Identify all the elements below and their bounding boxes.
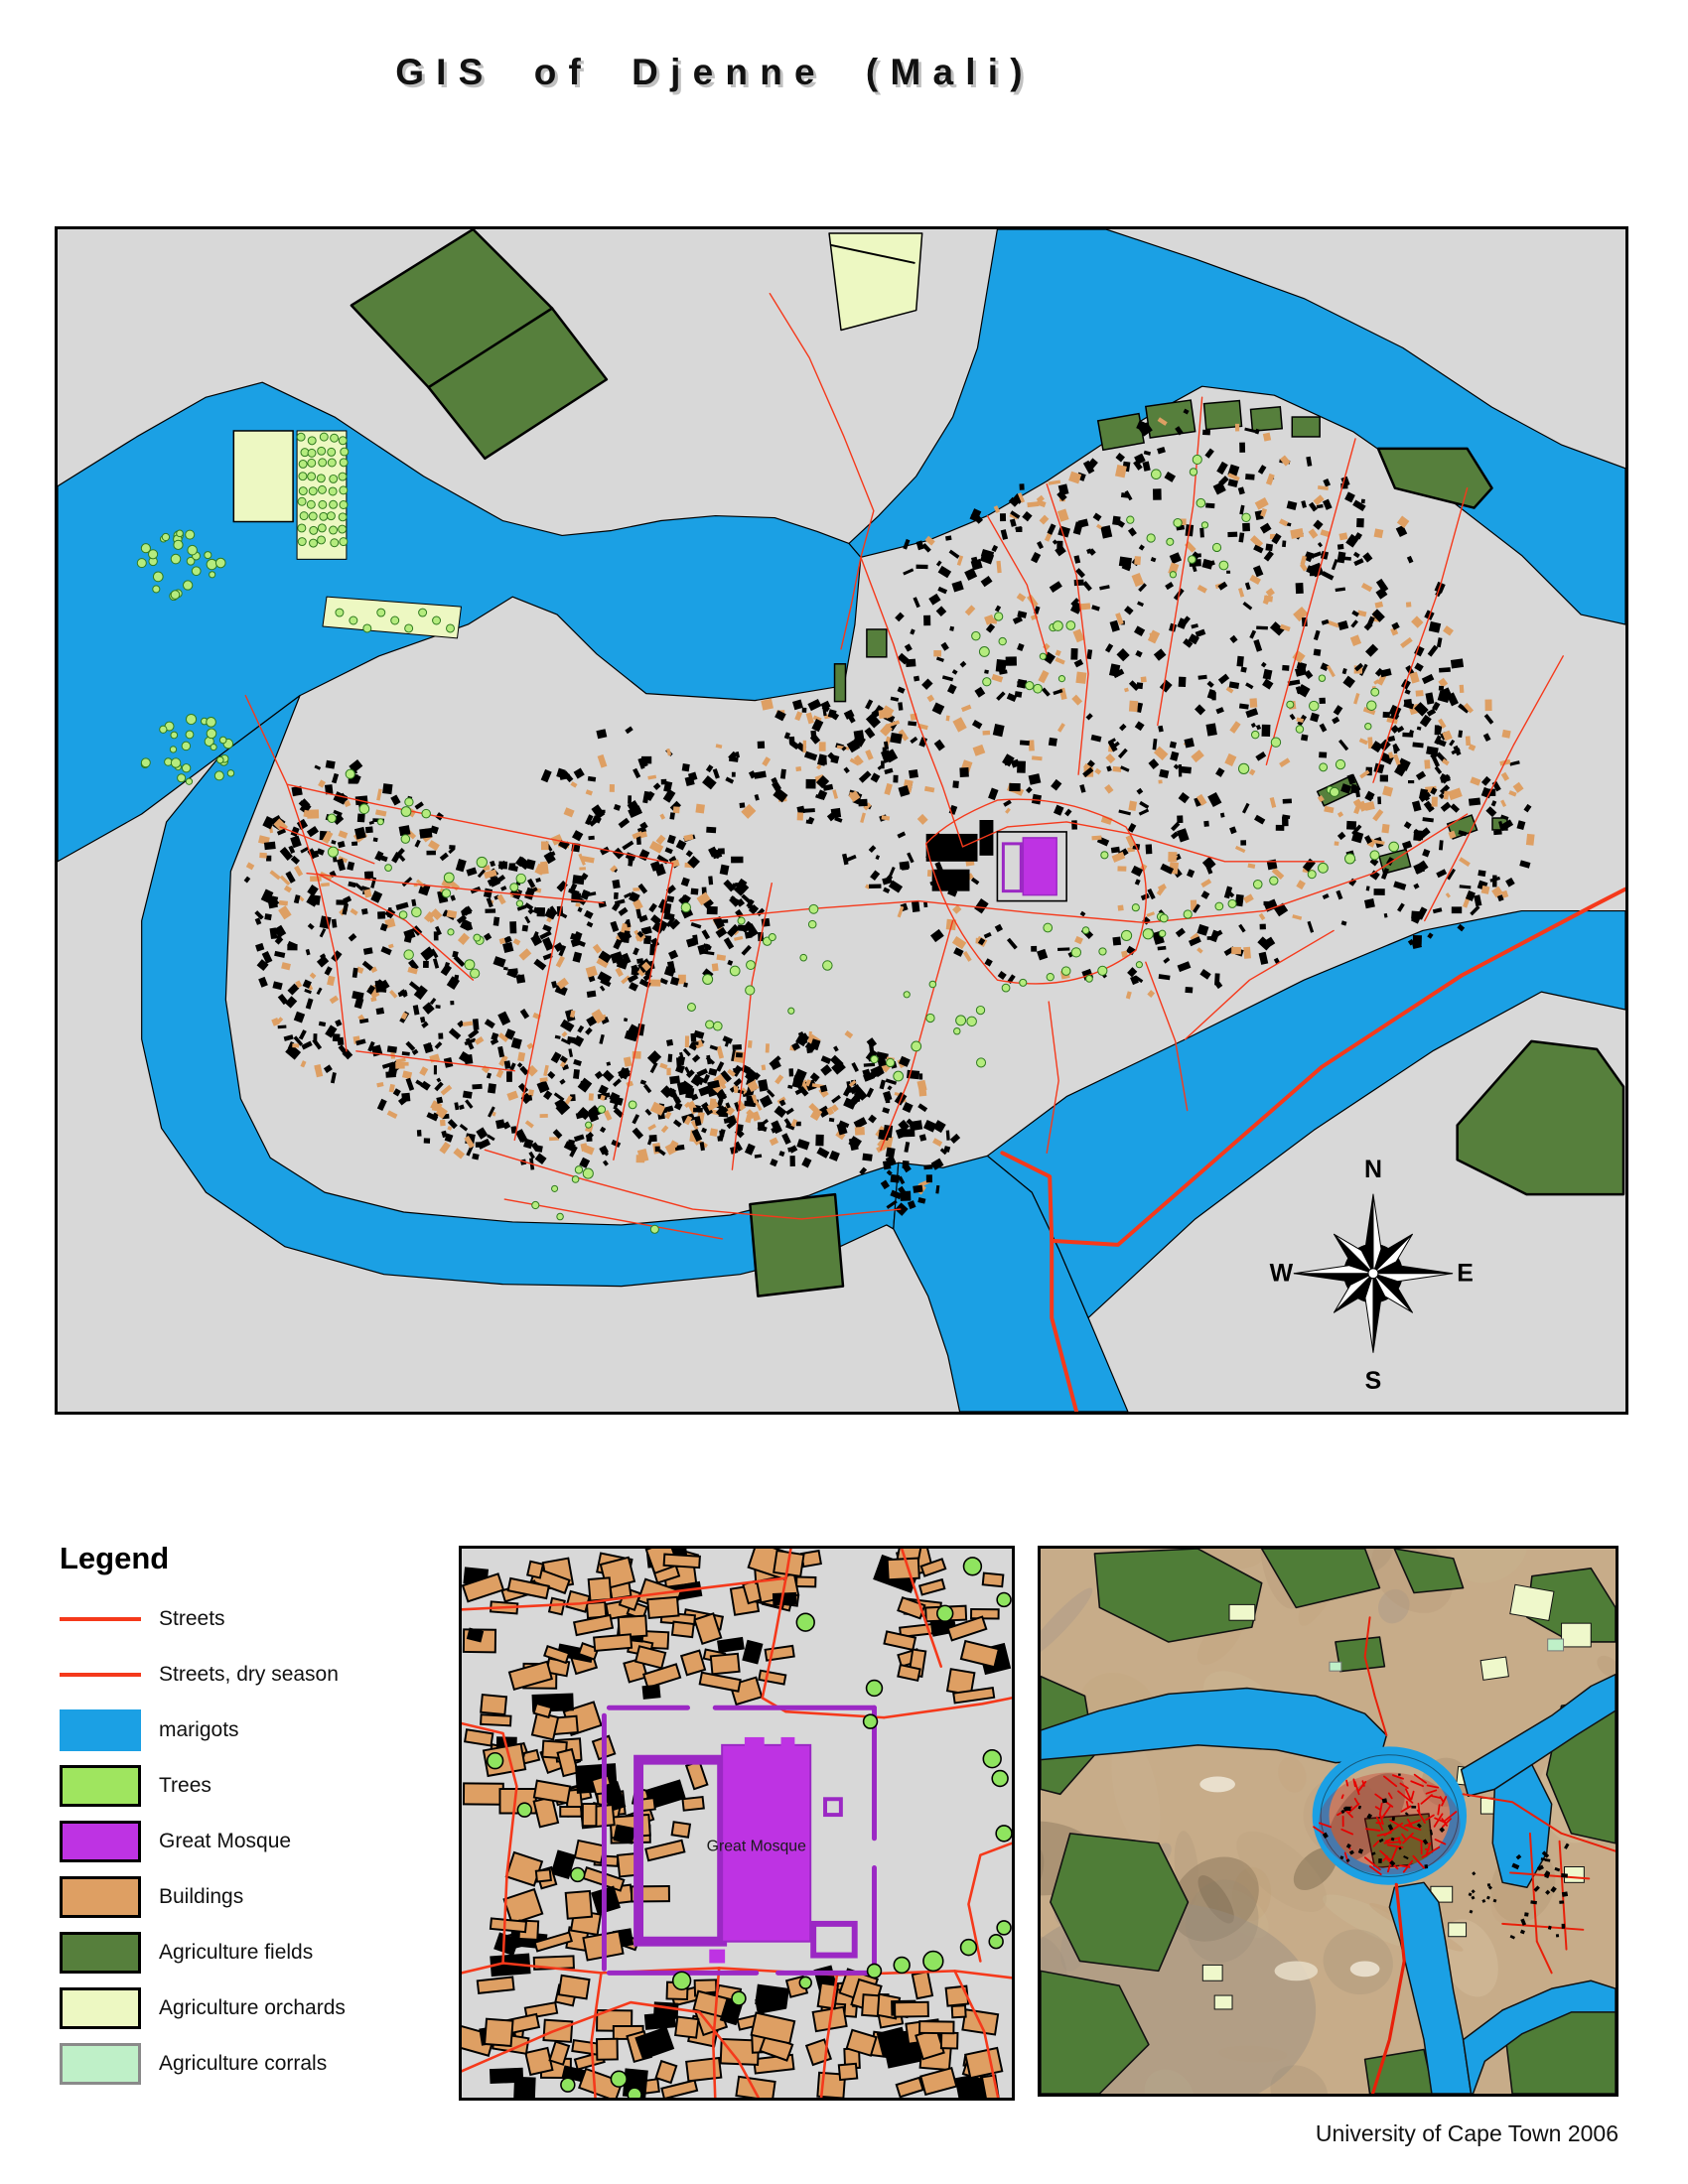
legend-item-label: Agriculture fields bbox=[159, 1941, 313, 1965]
poster-page: GIS of Djenne (Mali) NSWE Legend Streets… bbox=[0, 0, 1688, 2184]
legend-item-label: marigots bbox=[159, 1718, 239, 1742]
legend-item-label: Streets bbox=[159, 1607, 225, 1631]
legend-item-label: Streets, dry season bbox=[159, 1663, 339, 1687]
legend-item-streets-dry: Streets, dry season bbox=[60, 1654, 437, 1696]
legend: Legend Streets Streets, dry season marig… bbox=[60, 1541, 437, 2099]
attribution: University of Cape Town 2006 bbox=[1316, 2120, 1618, 2147]
agriculture-orchards-swatch bbox=[60, 1987, 141, 2029]
legend-item-agriculture-fields: Agriculture fields bbox=[60, 1932, 437, 1974]
legend-item-buildings: Buildings bbox=[60, 1876, 437, 1918]
inset-satellite-map bbox=[1038, 1546, 1618, 2097]
compass-e-label: E bbox=[1457, 1260, 1474, 1288]
inset-satellite-canvas bbox=[1041, 1549, 1616, 2094]
inset-mosque-canvas: Great Mosque bbox=[462, 1549, 1012, 2098]
marigots-swatch bbox=[60, 1709, 141, 1751]
compass-s-label: S bbox=[1365, 1367, 1382, 1395]
legend-title: Legend bbox=[60, 1541, 437, 1576]
legend-item-agriculture-corrals: Agriculture corrals bbox=[60, 2043, 437, 2085]
legend-item-label: Trees bbox=[159, 1774, 211, 1798]
agriculture-corrals-swatch bbox=[60, 2043, 141, 2085]
legend-item-marigots: marigots bbox=[60, 1709, 437, 1751]
buildings-swatch bbox=[60, 1876, 141, 1918]
page-title: GIS of Djenne (Mali) bbox=[318, 52, 1112, 93]
legend-item-streets: Streets bbox=[60, 1598, 437, 1640]
legend-item-label: Agriculture corrals bbox=[159, 2052, 327, 2076]
legend-item-label: Buildings bbox=[159, 1885, 243, 1909]
legend-item-agriculture-orchards: Agriculture orchards bbox=[60, 1987, 437, 2029]
inset-mosque-map: Great Mosque bbox=[459, 1546, 1015, 2101]
legend-item-label: Agriculture orchards bbox=[159, 1996, 346, 2020]
legend-item-great-mosque: Great Mosque bbox=[60, 1821, 437, 1862]
great-mosque-swatch bbox=[60, 1821, 141, 1862]
streets-line-swatch bbox=[60, 1617, 141, 1621]
great-mosque-main bbox=[997, 832, 1066, 901]
legend-item-trees: Trees bbox=[60, 1765, 437, 1807]
compass-w-label: W bbox=[1270, 1260, 1294, 1288]
legend-item-label: Great Mosque bbox=[159, 1830, 291, 1853]
main-map-canvas: NSWE bbox=[58, 229, 1625, 1412]
compass-n-label: N bbox=[1364, 1156, 1382, 1183]
trees-swatch bbox=[60, 1765, 141, 1807]
main-map: NSWE bbox=[55, 226, 1628, 1415]
agriculture-fields-swatch bbox=[60, 1932, 141, 1974]
great-mosque-label: Great Mosque bbox=[707, 1839, 806, 1855]
streets-dry-line-swatch bbox=[60, 1673, 141, 1677]
